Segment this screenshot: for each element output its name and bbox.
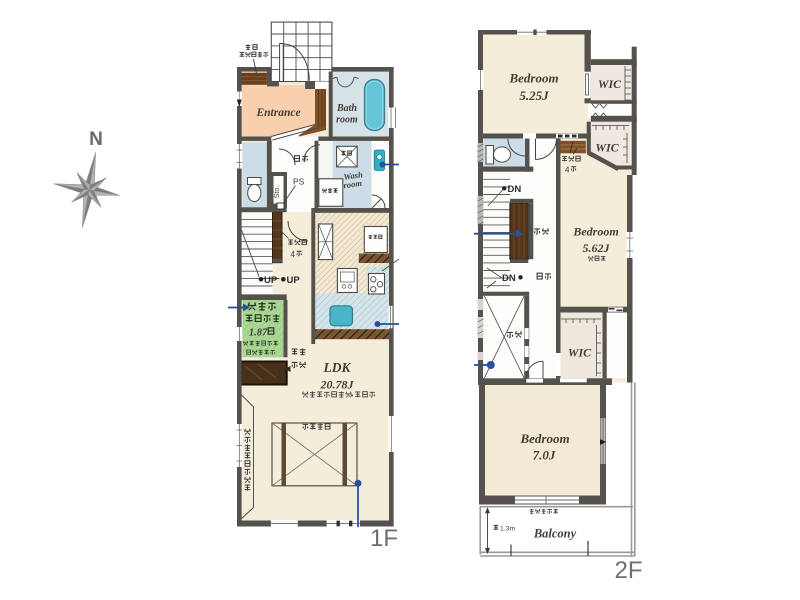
svg-text:WIC: WIC (595, 141, 619, 155)
svg-text:DN: DN (508, 184, 522, 195)
svg-text:2F: 2F (614, 557, 642, 584)
svg-text:PS: PS (293, 177, 305, 187)
svg-text:Entrance: Entrance (255, 107, 300, 119)
svg-text:4: 4 (291, 250, 296, 259)
svg-text:1.87: 1.87 (249, 328, 268, 339)
svg-text:Balcony: Balcony (533, 527, 577, 541)
svg-text:UP: UP (287, 275, 301, 286)
svg-text:UP: UP (264, 275, 278, 286)
svg-text:5.25J: 5.25J (519, 88, 549, 103)
svg-text:room: room (336, 115, 358, 126)
svg-text:Bath: Bath (336, 103, 357, 114)
svg-text:Bedroom: Bedroom (508, 71, 558, 86)
svg-text:LDK: LDK (323, 360, 352, 375)
svg-text:WIC: WIC (568, 346, 592, 360)
svg-text:20.78J: 20.78J (320, 378, 355, 392)
svg-text:Sto.: Sto. (274, 186, 281, 199)
svg-text:Bedroom: Bedroom (572, 225, 618, 239)
svg-text:N: N (89, 129, 103, 150)
svg-text:Bedroom: Bedroom (519, 431, 569, 446)
svg-text:1.3m: 1.3m (500, 526, 515, 533)
svg-text:DN: DN (502, 273, 516, 284)
svg-text:WIC: WIC (598, 77, 622, 91)
svg-text:7.0J: 7.0J (533, 448, 556, 463)
svg-text:5.62J: 5.62J (583, 241, 611, 255)
svg-text:1F: 1F (370, 525, 398, 552)
svg-text:4: 4 (565, 166, 570, 175)
